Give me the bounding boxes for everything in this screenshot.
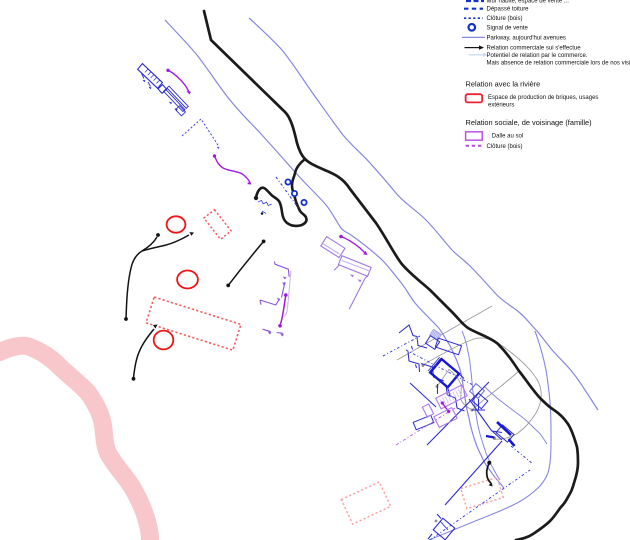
svg-text:Dalle au sol: Dalle au sol (492, 134, 523, 140)
svg-text:Clôture (bois): Clôture (bois) (487, 16, 523, 22)
svg-text:Relation avec la rivière: Relation avec la rivière (466, 80, 541, 89)
svg-text:extérieurs: extérieurs (488, 102, 514, 108)
svg-text:Relation sociale, de voisinage: Relation sociale, de voisinage (famille) (466, 118, 592, 127)
svg-text:Mur habité, espace de vente ..: Mur habité, espace de vente ... (487, 0, 570, 5)
svg-text:Signal de vente: Signal de vente (487, 26, 529, 32)
svg-text:Clôture (bois): Clôture (bois) (487, 144, 523, 150)
svg-text:Espace de production de briqu: Espace de production de briques, usages (488, 95, 598, 101)
svg-text:Mais absence de relation comme: Mais absence de relation commerciale lor… (487, 61, 630, 67)
svg-text:Potentiel de relation par le c: Potentiel de relation par le commerce. (487, 53, 588, 59)
svg-text:Parkway, aujourd'hui avenues: Parkway, aujourd'hui avenues (487, 36, 566, 42)
svg-text:Relation commerciale sui s'eff: Relation commerciale sui s'effectue (487, 46, 582, 52)
svg-text:Dépassé toiture: Dépassé toiture (487, 6, 530, 12)
